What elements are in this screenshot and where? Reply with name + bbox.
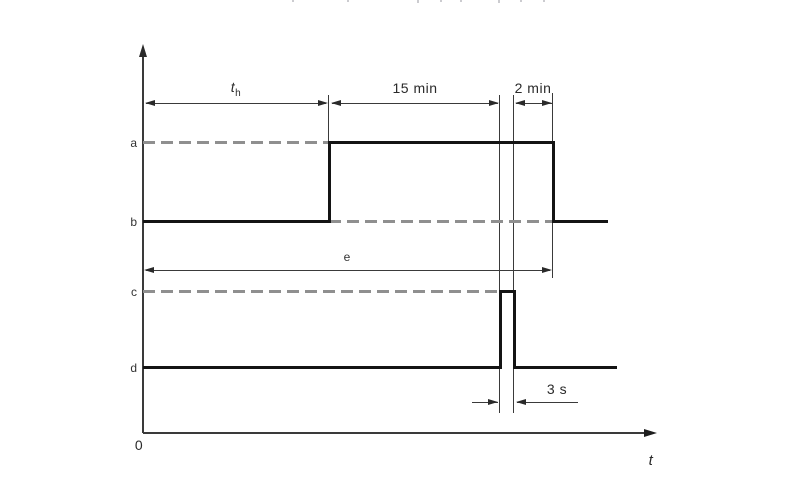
text-fragment xyxy=(460,0,462,2)
upper-signal-rising-edge xyxy=(328,141,331,223)
dim-label-th: th xyxy=(218,79,254,102)
dim-line-15min xyxy=(332,103,498,104)
dim-arrow-icon xyxy=(488,399,498,405)
time-axis-label: t xyxy=(640,453,662,469)
pulse-falling-edge xyxy=(513,290,516,369)
y-axis-line xyxy=(142,50,144,433)
text-fragment xyxy=(520,0,522,2)
dim-arrow-icon xyxy=(542,267,552,273)
level-label-b: b xyxy=(107,214,137,230)
origin-label: 0 xyxy=(128,437,150,453)
level-label-c: c xyxy=(107,284,137,300)
text-fragment xyxy=(440,0,442,2)
dim-arrow-icon xyxy=(318,100,328,106)
text-fragment xyxy=(543,0,545,2)
th-subscript: h xyxy=(235,88,241,99)
dim-arrow-icon xyxy=(331,100,341,106)
dashed-level-a xyxy=(143,141,329,144)
lower-signal-low-left xyxy=(143,366,502,369)
dashed-level-c xyxy=(143,290,500,293)
upper-signal-low-left xyxy=(143,220,331,223)
dim-arrow-icon xyxy=(144,267,154,273)
level-label-a: a xyxy=(107,135,137,151)
text-fragment xyxy=(498,0,500,3)
x-axis-arrow-icon xyxy=(644,429,657,437)
y-axis-arrow-icon xyxy=(139,44,147,57)
dim-arrow-icon xyxy=(515,100,525,106)
x-axis-line xyxy=(143,432,646,434)
upper-signal-high xyxy=(328,141,555,144)
dim-label-2min: 2 min xyxy=(503,80,563,96)
timing-diagram-figure: th 15 min 2 min e 3 s a b c d 0 t xyxy=(0,0,800,500)
text-fragment xyxy=(417,0,419,3)
dim-line-e xyxy=(146,270,550,271)
text-fragment xyxy=(292,0,294,2)
dim-label-15min: 15 min xyxy=(375,80,455,96)
dim-label-e: e xyxy=(337,250,357,264)
dim-arrow-icon xyxy=(516,399,526,405)
dashed-level-b xyxy=(329,220,553,223)
pulse-rising-edge xyxy=(499,290,502,369)
lower-signal-low-right xyxy=(513,366,617,369)
upper-signal-low-right xyxy=(552,220,608,223)
level-label-d: d xyxy=(107,360,137,376)
dim-arrow-icon xyxy=(542,100,552,106)
dim-arrow-icon xyxy=(489,100,499,106)
extension-line-step-up xyxy=(328,95,329,143)
dim-arrow-icon xyxy=(145,100,155,106)
dim-line-3s-right-arm xyxy=(517,402,578,403)
text-fragment xyxy=(347,0,349,2)
dim-label-3s: 3 s xyxy=(532,381,582,397)
dim-line-th xyxy=(146,103,326,104)
upper-signal-falling-edge xyxy=(552,141,555,223)
